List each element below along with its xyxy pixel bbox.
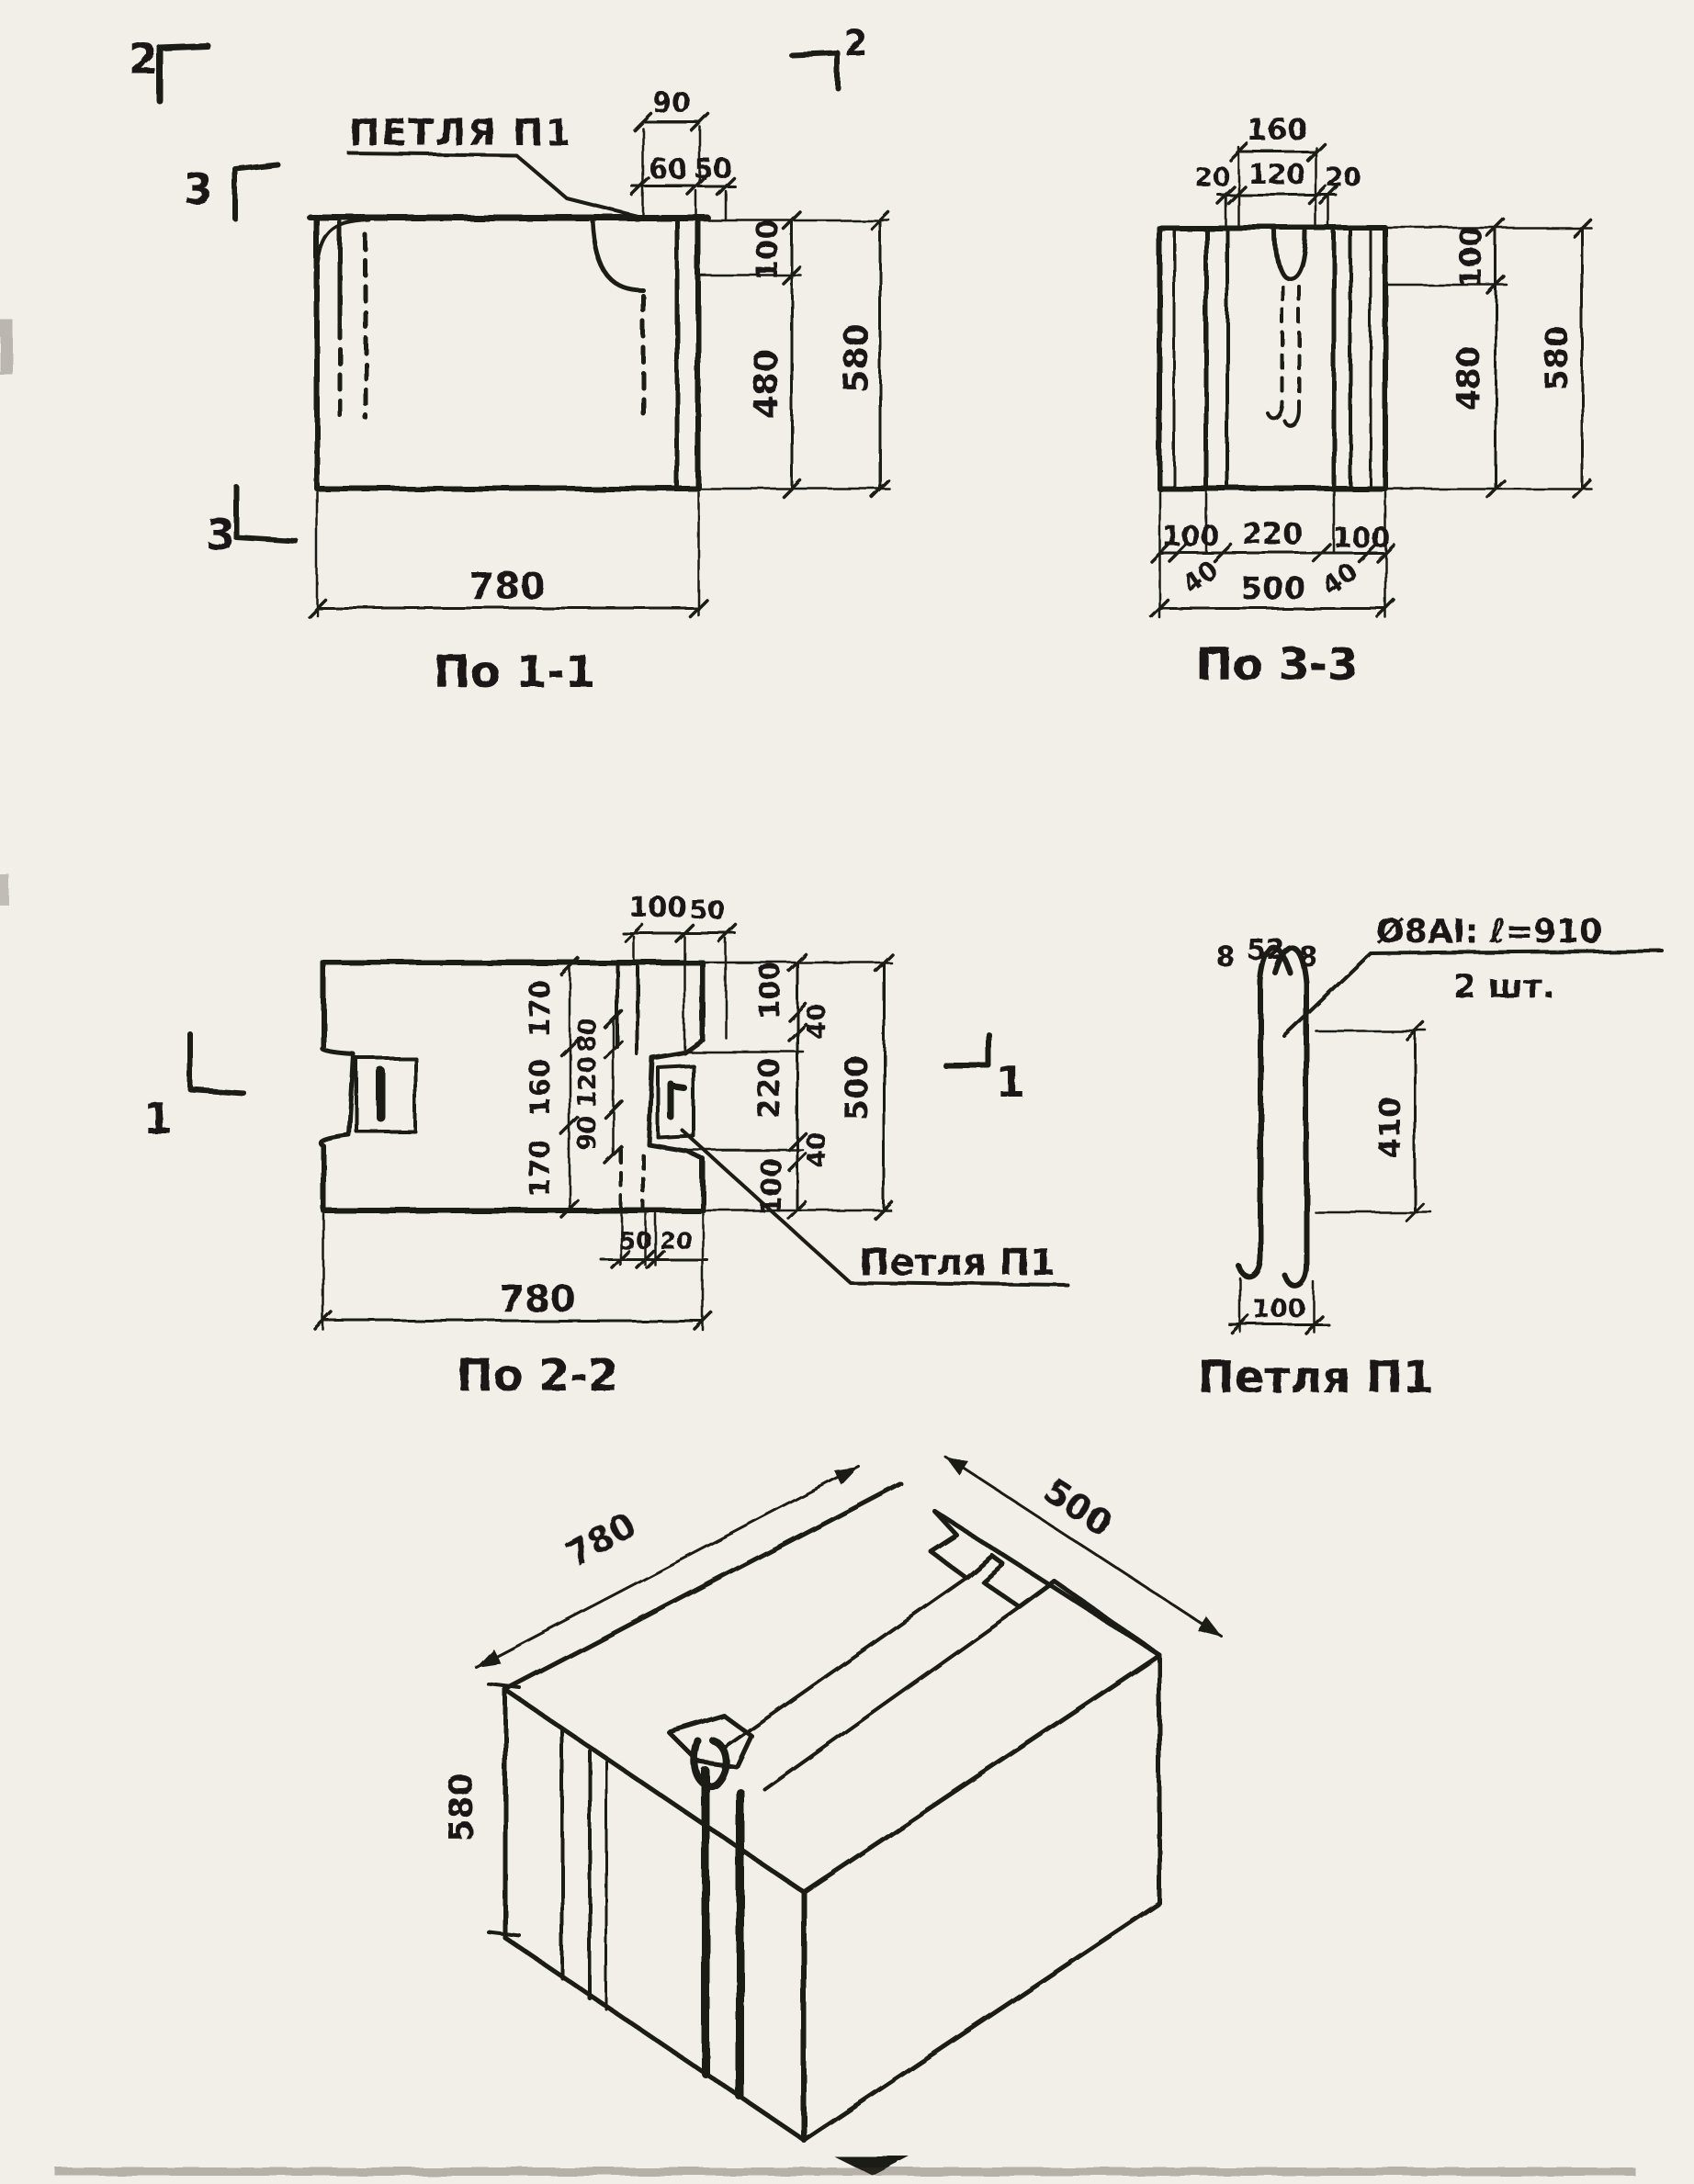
view22-title: По 2-2 — [457, 1350, 619, 1402]
view22-dim-100r2: 100 — [756, 1158, 788, 1216]
loop-dim-100: 100 — [1252, 1293, 1305, 1323]
view22-dim-40r1: 40 — [801, 1004, 831, 1040]
view11-dim-90: 90 — [652, 87, 691, 119]
view33-dim-100r: 100 — [1453, 227, 1488, 288]
view22-loop-callout-label: Петля П1 — [859, 1242, 1056, 1284]
view22-dim-20b: 20 — [660, 1228, 693, 1255]
view11-title: По 1-1 — [434, 647, 596, 698]
view33-dim-100bl: 100 — [1162, 521, 1220, 553]
view22-dim-500: 500 — [839, 1056, 875, 1121]
view22-dim-90: 90 — [573, 1116, 602, 1151]
view11-dim-780: 780 — [469, 566, 546, 608]
view33-dim-220: 220 — [1242, 516, 1304, 551]
view22-dim-170b: 170 — [525, 1140, 557, 1198]
view22-dim-120: 120 — [573, 1056, 602, 1108]
view33-dim-100br: 100 — [1333, 523, 1391, 555]
view22-dim-50t: 50 — [690, 895, 726, 925]
view22-dim-100r1: 100 — [754, 962, 786, 1019]
marker-2-left-label: 2 — [129, 34, 158, 84]
loop-note-line2: 2 шт. — [1453, 968, 1554, 1006]
drawing-canvas: 2 2 3 3 1 1 ПЕТЛЯ П1 90 60 50 100 480 58… — [0, 0, 1694, 2184]
view33-dim-580: 580 — [1539, 326, 1575, 391]
loop-dim-8r: 8 — [1299, 941, 1318, 974]
view11-dim-480: 480 — [748, 349, 785, 418]
view11-dim-50: 50 — [694, 153, 732, 186]
marker-1-right-label: 1 — [996, 1057, 1025, 1107]
view33-dim-480: 480 — [1451, 346, 1487, 411]
view22-dim-50b: 50 — [619, 1228, 652, 1255]
view22-dim-220: 220 — [751, 1058, 786, 1120]
scanned-drawing-page: 2 2 3 3 1 1 ПЕТЛЯ П1 90 60 50 100 480 58… — [0, 0, 1694, 2184]
loop-detail-title: Петля П1 — [1198, 1352, 1434, 1403]
loop-dim-8l: 8 — [1216, 941, 1236, 974]
view11-dim-60: 60 — [649, 153, 687, 186]
view33-dim-20l: 20 — [1195, 162, 1231, 192]
loop-callout-top-label: ПЕТЛЯ П1 — [349, 112, 572, 154]
view33-dim-500: 500 — [1241, 570, 1306, 607]
view33-dim-20r: 20 — [1326, 162, 1361, 192]
view22-dim-40r2: 40 — [801, 1132, 831, 1168]
view33-title: По 3-3 — [1196, 639, 1359, 691]
marker-2-right-label: 2 — [843, 23, 867, 63]
view33-dim-160: 160 — [1247, 112, 1308, 147]
loop-note-line1: Ø8АI: ℓ=910 — [1376, 913, 1602, 951]
view22-dim-100t: 100 — [629, 892, 687, 924]
marker-1-left-label: 1 — [143, 1094, 173, 1143]
view33-dim-120: 120 — [1248, 159, 1306, 191]
loop-dim-410: 410 — [1372, 1098, 1407, 1159]
iso-dim-580: 580 — [443, 1773, 480, 1841]
view11-dim-100: 100 — [750, 220, 785, 281]
view11-dim-580: 580 — [838, 323, 875, 392]
view22-dim-80: 80 — [573, 1018, 602, 1053]
marker-3-top-label: 3 — [184, 164, 213, 214]
view22-dim-170a: 170 — [525, 980, 557, 1038]
view22-dim-780: 780 — [499, 1278, 576, 1321]
view22-dim-160: 160 — [525, 1059, 557, 1117]
marker-3-bottom-label: 3 — [206, 510, 235, 559]
loop-dim-52: 52 — [1247, 934, 1285, 966]
